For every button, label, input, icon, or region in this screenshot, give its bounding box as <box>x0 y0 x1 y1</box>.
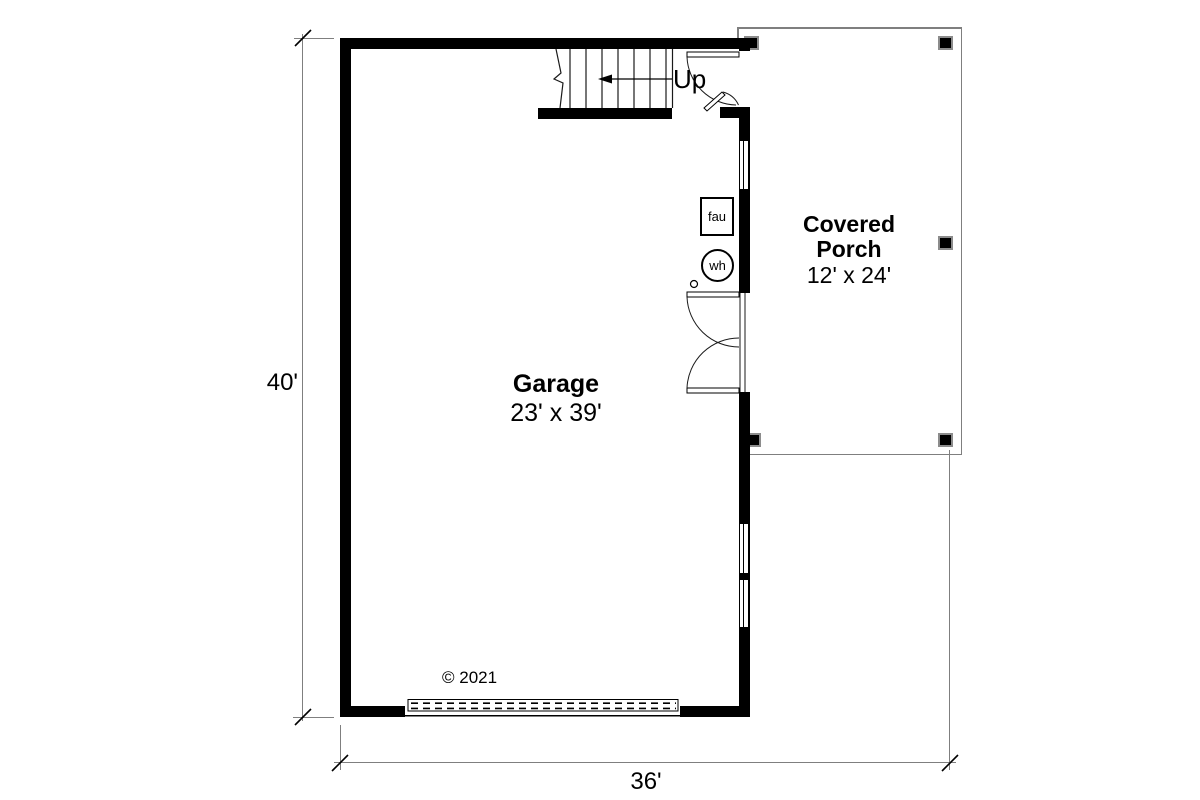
garage-wall-top <box>340 38 750 49</box>
stair-treads <box>570 49 673 108</box>
garage-wall-right-seg1 <box>739 38 750 51</box>
porch-outline-right <box>961 27 963 455</box>
garage-room-dimensions: 23' x 39' <box>510 399 602 428</box>
floor-plan-canvas: fau wh <box>0 0 1200 800</box>
window <box>739 523 750 574</box>
porch-room-label: Covered Porch 12' x 24' <box>803 212 895 289</box>
garage-wall-right-seg5 <box>739 628 750 717</box>
porch-post <box>938 433 953 447</box>
garage-room-name: Garage <box>510 370 602 399</box>
stair-lower-wall <box>538 108 672 119</box>
dimension-extension-porch-edge <box>949 450 950 770</box>
french-door-swing-top <box>687 297 739 347</box>
dimension-extension-garage-corner <box>340 725 341 770</box>
stair-break-line <box>554 49 563 108</box>
landing-wall-stub <box>720 107 739 118</box>
garage-wall-right-seg2 <box>739 107 750 140</box>
window-glass-line <box>743 579 749 628</box>
landing-garage-door-swing <box>723 92 739 105</box>
fau-box: fau <box>700 197 734 236</box>
garage-wall-right-seg3 <box>739 190 750 293</box>
porch-post <box>938 36 953 50</box>
dimension-ticks <box>295 30 958 771</box>
fau-label: fau <box>708 209 726 224</box>
window <box>739 579 750 628</box>
porch-room-name-line2: Porch <box>803 237 895 262</box>
wh-circle: wh <box>701 249 734 282</box>
stair-up-label: Up <box>673 64 706 95</box>
porch-post <box>938 236 953 250</box>
stair-up-arrow-head <box>598 75 612 84</box>
garage-wall-left <box>340 38 351 717</box>
window <box>739 140 750 190</box>
dimension-line-bottom <box>334 762 956 763</box>
window-glass-line <box>743 140 749 190</box>
garage-wall-right-seg4 <box>739 392 750 523</box>
window-glass-line <box>743 523 749 574</box>
dimension-label-bottom: 36' <box>630 768 661 796</box>
french-door-leaf-bottom <box>687 388 739 393</box>
copyright-text: © 2021 <box>442 668 497 688</box>
floor-drain <box>691 281 698 288</box>
dimension-line-left <box>302 34 303 721</box>
dimension-label-left: 40' <box>238 369 298 397</box>
french-door-swing-bottom <box>687 338 739 388</box>
porch-room-name-line1: Covered <box>803 212 895 237</box>
garage-room-label: Garage 23' x 39' <box>510 370 602 428</box>
dimension-extension-top-left <box>294 38 334 39</box>
garage-door-slab <box>408 700 678 712</box>
porch-outline-top <box>737 27 962 29</box>
porch-room-dimensions: 12' x 24' <box>803 262 895 289</box>
porch-outline-bottom <box>750 454 962 456</box>
dimension-extension-bottom-left <box>293 717 334 718</box>
french-door-leaf-top <box>687 292 739 297</box>
wh-label: wh <box>709 258 726 273</box>
garage-wall-bottom-left-of-door <box>340 706 405 717</box>
landing-porch-door-leaf <box>687 52 739 57</box>
